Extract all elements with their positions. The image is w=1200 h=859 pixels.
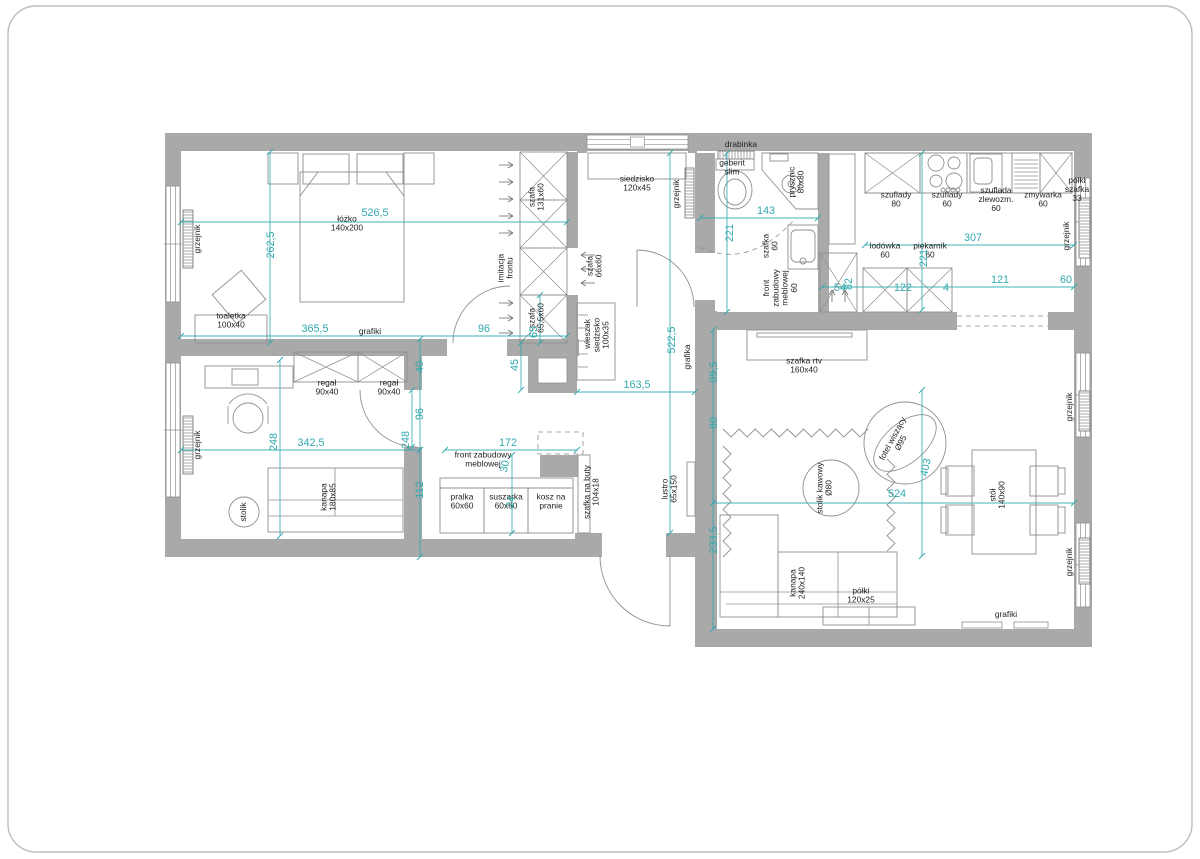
dim-89-5: 89,5 (708, 361, 720, 382)
door-or-fixture-path (600, 556, 670, 626)
radiator-icon (1079, 198, 1090, 258)
furniture-rect (920, 153, 967, 193)
dim-248: 248 (400, 431, 412, 449)
furniture-rect (946, 505, 974, 535)
front-arrow-head (508, 300, 513, 303)
zigzag-line (723, 429, 868, 437)
front-arrow-head (508, 162, 513, 165)
label-kanapa: kanapa240x140 (787, 567, 806, 599)
label-stolik-kawowy: stolik kawowyØ80 (814, 462, 833, 514)
label-drabinka: drabinka (725, 139, 757, 149)
label-grzejnik: grzejnik (1061, 221, 1071, 251)
furniture-rect (357, 154, 403, 184)
label-szuflada: szufladazlewozm.60 (979, 185, 1014, 213)
label-grzejnik: grzejnik (1064, 547, 1074, 577)
window-sill-tick (631, 137, 645, 147)
wall-segment (695, 312, 957, 330)
label-grafiki: grafiki (359, 326, 381, 336)
furniture-rect (303, 154, 349, 184)
front-arrow-head (508, 230, 513, 233)
furniture-rect (687, 462, 695, 516)
front-arrow-head (508, 213, 513, 216)
wall-segment (695, 629, 1092, 647)
dim-24: 24 (504, 495, 518, 509)
label-prysznic: prysznic80x80 (786, 167, 805, 198)
wall-segment (165, 539, 602, 557)
front-arrow-head (508, 233, 513, 236)
label-stół: stół140x90 (987, 481, 1006, 509)
wall-segment (688, 133, 697, 153)
furniture-circle (928, 155, 944, 171)
furniture-rect (865, 153, 1072, 193)
furniture-ellipse (718, 171, 752, 209)
furniture-rect (757, 333, 852, 337)
furniture-circle (930, 175, 942, 187)
front-arrow-head (508, 182, 513, 185)
label-lodówka: lodówka60 (870, 240, 901, 259)
label-grzejnik: grzejnik (1064, 392, 1074, 422)
wall-segment (577, 133, 587, 153)
wall-segment (666, 533, 697, 557)
label-zmywarka: zmywarka60 (1024, 189, 1062, 208)
dim-163-5: 163,5 (623, 379, 650, 391)
dim-82: 82 (843, 278, 855, 290)
furniture-rect (440, 478, 573, 488)
dim-30: 30 (498, 459, 512, 473)
wall-segment (1048, 312, 1074, 330)
dim-80: 80 (708, 417, 720, 429)
zigzag-line (887, 459, 895, 551)
wall-niche (1014, 622, 1048, 628)
furniture-rect (1012, 153, 1040, 193)
front-arrow-head (508, 318, 513, 321)
floor-plan-page: łóżko140x200toaletka100x40grafikiszafa13… (0, 0, 1200, 859)
label-szuflady: szuflady60 (932, 189, 964, 208)
label-pralka: pralka60x60 (451, 491, 474, 510)
furniture-rect (829, 154, 855, 244)
furniture-circle (948, 157, 960, 169)
wall-segment (567, 295, 578, 343)
wall-segment (567, 152, 578, 248)
zigzag-line (723, 446, 731, 557)
label-grzejnik: grzejnik (192, 430, 202, 460)
label-grafika: grafika (682, 344, 692, 369)
label-kosz-na: kosz napranie (537, 491, 566, 510)
dim-45: 45 (509, 359, 521, 371)
door-or-fixture-path (229, 394, 267, 404)
front-arrow-head (829, 290, 832, 295)
radiators (183, 151, 1090, 584)
dim-4: 4 (943, 282, 949, 294)
wall-segment (575, 533, 602, 557)
label-front: frontzabudowymeblowej60 (761, 268, 799, 307)
dim-60: 60 (1060, 274, 1072, 286)
front-arrow-head (508, 315, 513, 318)
label-szafka-rtv: szafka rtv160x40 (786, 355, 823, 374)
furniture-round-rect (974, 158, 992, 184)
furniture-rect (1058, 507, 1065, 533)
label-łóżko: łóżko140x200 (331, 213, 363, 232)
dim-233-5: 233,5 (708, 526, 720, 553)
dim-248: 248 (268, 433, 280, 451)
dim-342-5: 342,5 (297, 437, 324, 449)
front-arrow-head (508, 199, 513, 202)
label-szafka-na-buty: szafka na buty104x18 (581, 464, 600, 519)
label-kanapa: kanapa180x85 (318, 483, 337, 511)
label-półki: półki120x25 (847, 585, 875, 604)
label-regał: regał90x40 (378, 377, 401, 396)
label-grzejnik: grzejnik (192, 224, 202, 254)
furniture-rect (941, 468, 948, 494)
label-stolik: stolik (238, 502, 248, 522)
front-arrow-head (508, 179, 513, 182)
dim-143: 143 (757, 205, 775, 217)
dim-526-5: 526,5 (361, 207, 388, 219)
front-arrow-head (581, 280, 586, 283)
label-imitacja: imitacjafrontu (495, 253, 514, 282)
front-arrow-head (508, 330, 513, 333)
dim-172: 172 (499, 437, 517, 449)
furniture-rect (941, 507, 948, 533)
windows (164, 135, 1092, 607)
wall-niche (538, 358, 567, 383)
furniture-rect (720, 515, 778, 617)
dim-121: 121 (991, 274, 1009, 286)
furniture-rect (404, 153, 434, 184)
dim-65: 65 (528, 326, 540, 338)
wall-segment (404, 447, 422, 557)
furniture-rect (1030, 505, 1058, 535)
furniture-rect (770, 154, 788, 161)
label-siedzisko: siedzisko120x45 (620, 173, 655, 192)
furniture-round-rect (791, 230, 815, 262)
label-geberit: geberitslim (719, 157, 745, 176)
dim-112: 112 (414, 481, 426, 498)
front-arrow-head (581, 252, 586, 255)
dim-122: 122 (894, 282, 912, 294)
dim-96: 96 (478, 323, 490, 335)
label-szuflady: szuflady80 (881, 189, 913, 208)
furniture-rect (232, 369, 258, 385)
furniture-rect (268, 153, 298, 184)
wall-segment (695, 311, 717, 647)
dim-221: 221 (724, 224, 736, 242)
front-arrow-head (508, 216, 513, 219)
front-arrow-head (508, 303, 513, 306)
dim-96: 96 (414, 408, 426, 420)
front-arrow-head (508, 196, 513, 199)
dim-524: 524 (888, 488, 906, 500)
furniture-circle (233, 403, 263, 433)
label-lustro: lustro65x150 (659, 475, 678, 503)
label-szafa: szafa131x60 (526, 183, 545, 211)
dim-307: 307 (964, 232, 982, 244)
furniture-circle (800, 258, 806, 264)
furniture-circle (946, 173, 962, 189)
wall-segment (695, 153, 715, 253)
floor-plan-svg: łóżko140x200toaletka100x40grafikiszafa13… (0, 0, 1200, 859)
door-or-fixture-path (637, 250, 694, 307)
furniture-rect (1030, 466, 1058, 496)
dim-221: 221 (918, 249, 930, 267)
label-regał: regał90x40 (316, 377, 339, 396)
dim-522-5: 522,5 (666, 326, 678, 353)
label-toaletka: toaletka100x40 (216, 310, 246, 329)
label-szafa: szafa66x60 (584, 254, 603, 277)
label-grafiki: grafiki (995, 609, 1017, 619)
label-szafka: szafka60 (760, 234, 779, 259)
furniture-rect (946, 466, 974, 496)
label-grzejnik: grzejnik (671, 179, 681, 209)
dim-40: 40 (414, 361, 426, 373)
front-arrow-head (581, 283, 586, 286)
wall-segment (540, 455, 578, 477)
dim-262-5: 262,5 (265, 231, 277, 258)
furniture-rect (1058, 468, 1065, 494)
label-siedzisko: siedzisko100x35 (591, 317, 610, 352)
label-fotel-wiszący: fotel wiszącyØ95 (877, 414, 917, 466)
dim-365-5: 365,5 (301, 323, 328, 335)
front-arrow-head (508, 165, 513, 168)
wall-niche (962, 622, 1002, 628)
furniture-rect (300, 172, 404, 302)
